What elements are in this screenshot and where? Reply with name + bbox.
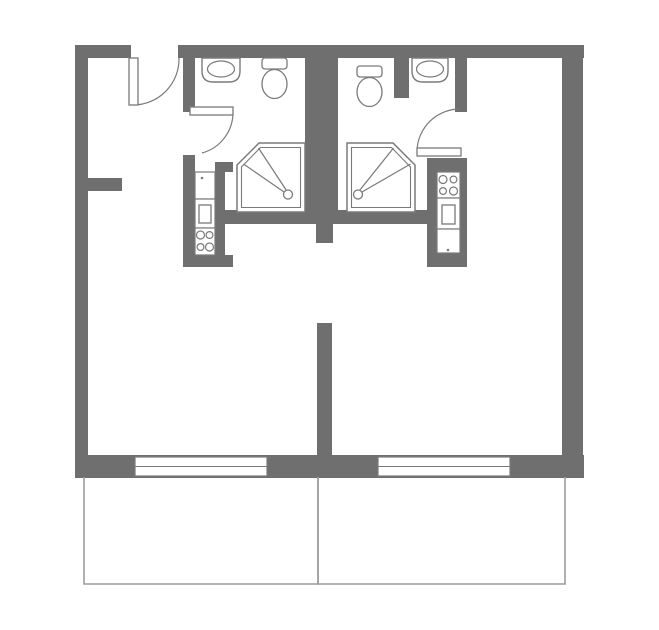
kitchen-left-wall-top xyxy=(215,162,233,172)
shower-right-drain xyxy=(354,190,363,199)
toilet-left-cistern xyxy=(262,58,287,69)
bath-right-inner-stub xyxy=(394,58,409,98)
kitchenette-right-tap-dot xyxy=(447,249,450,252)
bathroom-left-door-swing-arc xyxy=(202,113,233,153)
kitchenette-right-oven-inner xyxy=(442,205,455,224)
bath-left-wall-lower xyxy=(183,155,195,267)
kitchenette-left-tap-dot xyxy=(201,177,204,180)
sink-left-basin xyxy=(208,61,235,77)
kitchenette-left-oven-inner xyxy=(199,205,211,223)
bath-right-wall-upper xyxy=(455,58,467,112)
toilet-right-cistern xyxy=(357,66,382,77)
bathroom-right-door-leaf xyxy=(417,148,461,156)
center-shaft-wall xyxy=(305,58,338,224)
shower-left-drain xyxy=(284,190,293,199)
kitchenette-left-burner-0 xyxy=(197,231,205,239)
kitchen-left-wall-right xyxy=(215,162,225,257)
kitchen-right-wall-back xyxy=(460,172,467,253)
room-divider-wall xyxy=(317,323,332,455)
outer-wall-left xyxy=(75,45,88,478)
floor-plan-drawing xyxy=(0,0,659,630)
kitchenette-right-burner-2 xyxy=(440,188,447,195)
kitchen-left-wall-bottom xyxy=(183,255,233,267)
kitchenette-right-burner-1 xyxy=(450,176,457,183)
floor-plan-page xyxy=(0,0,659,630)
outer-wall-right xyxy=(562,45,583,478)
entry-door-swing-arc xyxy=(133,58,179,105)
bath-left-wall-upper xyxy=(183,58,195,112)
kitchenette-left-burner-1 xyxy=(206,232,213,239)
kitchenette-left-counter xyxy=(195,172,215,199)
toilet-right-bowl xyxy=(357,78,382,107)
kitchenette-right-burner-0 xyxy=(439,176,447,184)
sink-right-basin xyxy=(417,61,444,77)
kitchen-right-wall-bottom xyxy=(427,253,467,267)
shower-left-tray xyxy=(237,143,305,212)
kitchenette-right-burner-3 xyxy=(450,187,458,195)
outer-wall-top-left-stub xyxy=(75,45,131,58)
outer-wall-top xyxy=(178,45,584,58)
bathroom-right-door-swing-arc xyxy=(417,109,460,151)
room-divider-stub xyxy=(316,224,333,243)
shower-right-tray xyxy=(347,143,415,212)
toilet-left-bowl xyxy=(262,70,287,99)
balcony-left xyxy=(84,477,318,584)
entry-door-leaf xyxy=(129,58,138,105)
balcony-right xyxy=(318,477,565,584)
kitchen-right-wall-left xyxy=(427,158,437,265)
kitchenette-left-burner-2 xyxy=(197,244,204,251)
kitchenette-left-burner-3 xyxy=(206,243,214,251)
bathroom-left-door-leaf xyxy=(190,107,233,115)
hall-closet-stub xyxy=(88,178,122,191)
